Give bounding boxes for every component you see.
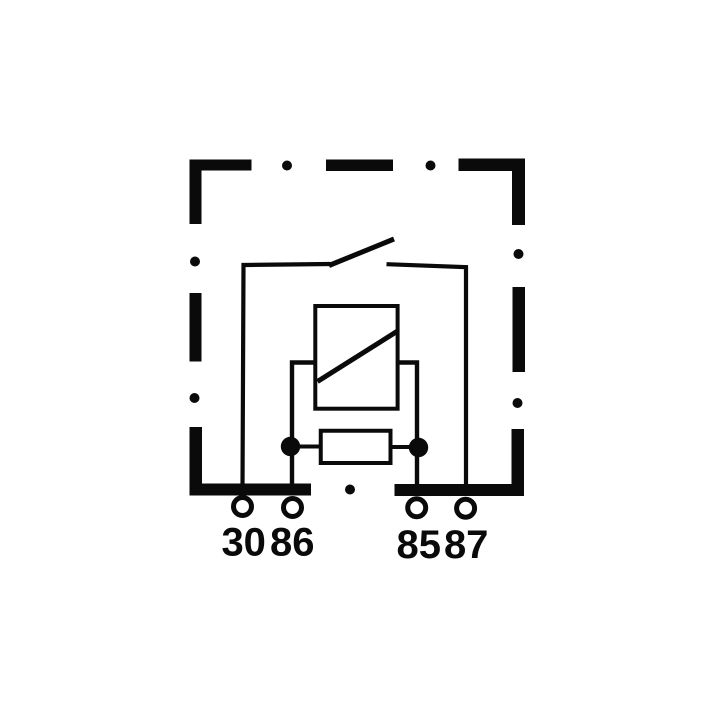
svg-text:85: 85 xyxy=(397,523,442,567)
svg-text:30: 30 xyxy=(221,521,266,565)
svg-text:87: 87 xyxy=(444,523,489,567)
svg-text:86: 86 xyxy=(270,521,315,565)
